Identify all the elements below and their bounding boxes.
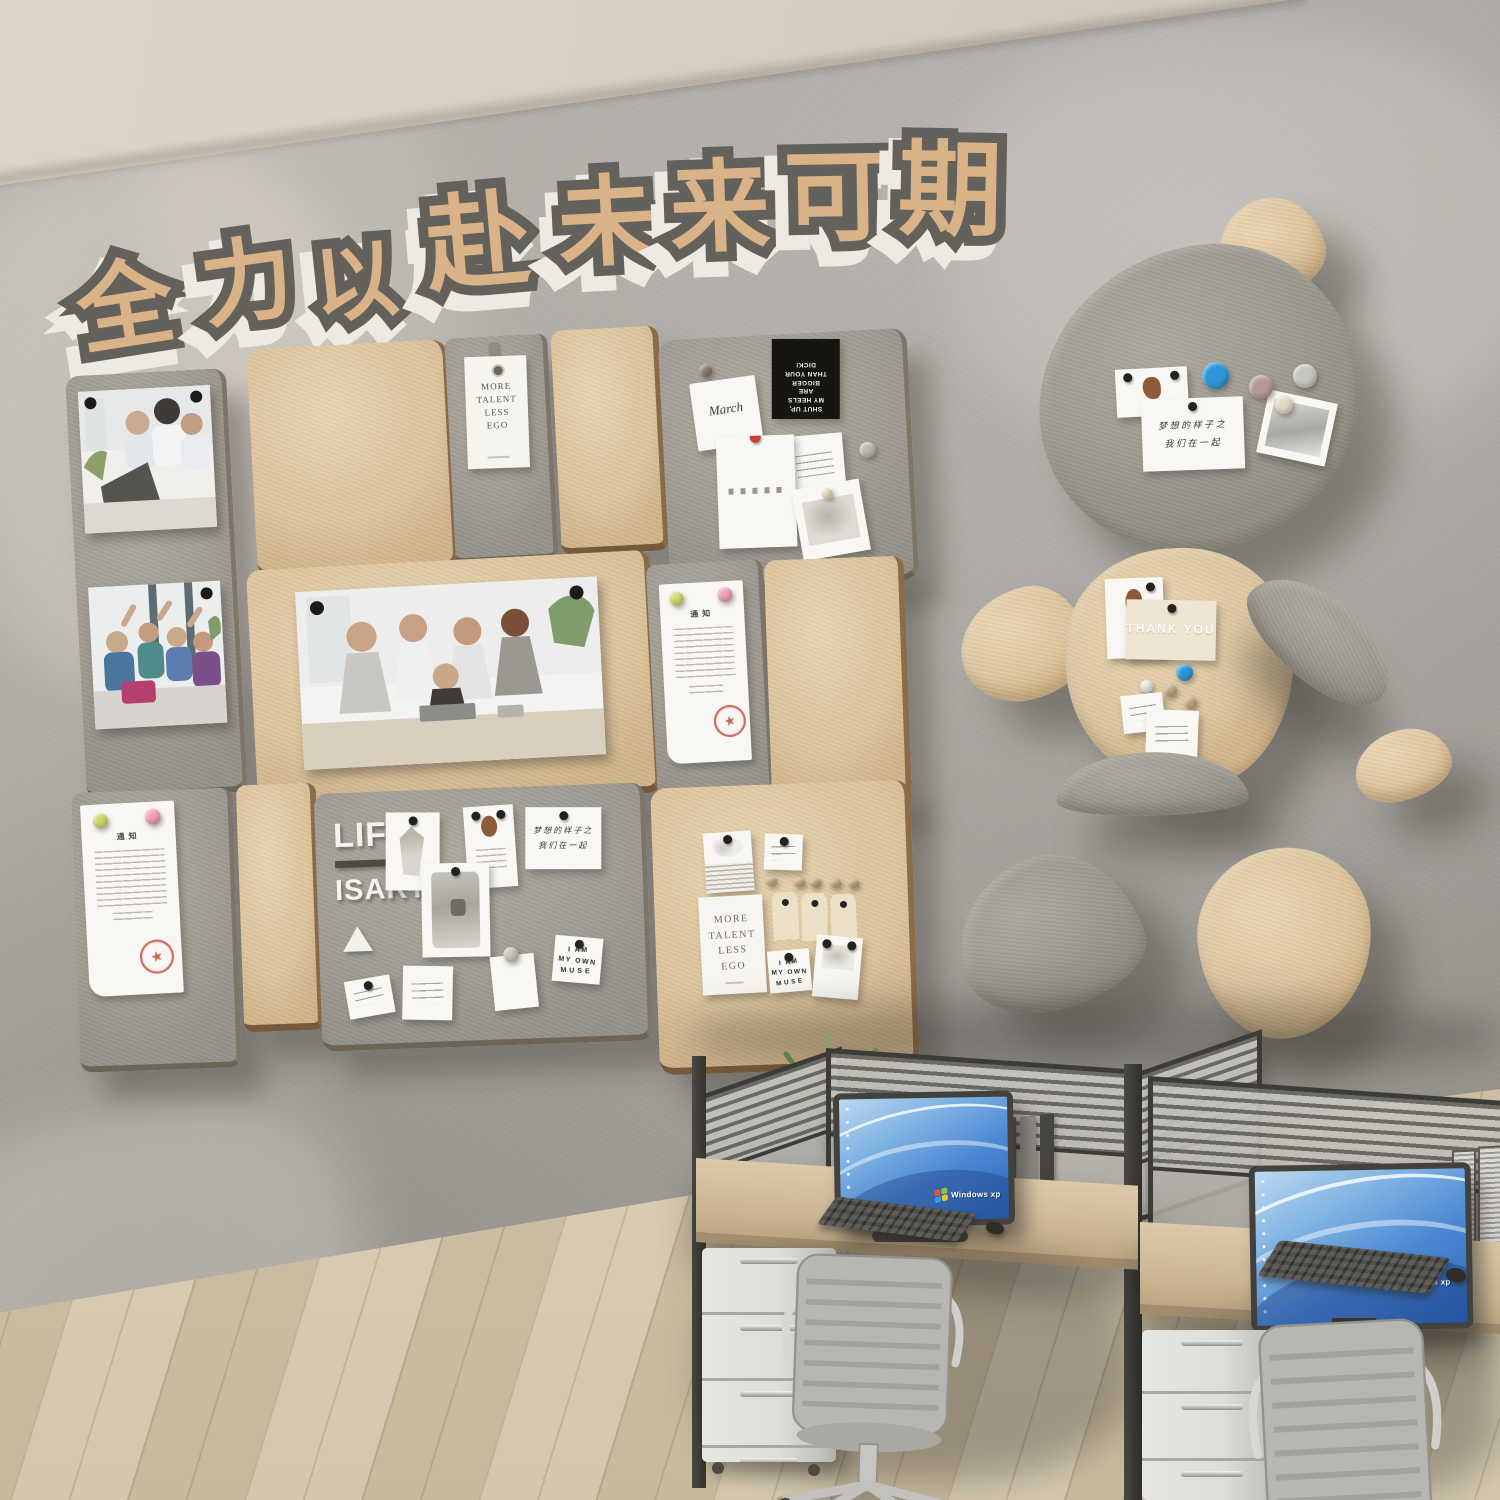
tag-hole: [781, 899, 788, 906]
slogan-char-4: 赴赴赴: [421, 185, 545, 309]
felt-pin: [793, 877, 805, 887]
windows-xp-logo: Windows xp: [935, 1188, 1001, 1202]
felt-board-tan-blank: [550, 325, 670, 555]
muse-text: I AM MY OWN MUSE: [767, 956, 811, 989]
magnet-mauve: [1249, 375, 1273, 399]
magnet-white: [1140, 680, 1153, 693]
small-note: [764, 833, 803, 870]
pin-dot: [409, 816, 418, 825]
notice-body-lines: [673, 626, 736, 681]
poster-text: MORE TALENT LESS EGO: [699, 910, 766, 975]
char-fill: 赴: [421, 186, 534, 299]
tag-hole: [839, 901, 846, 908]
pin-dot: [1170, 371, 1179, 380]
windows-flag-icon: [935, 1187, 949, 1203]
office-chair-left: [752, 1248, 991, 1500]
magnet-pink: [144, 808, 161, 825]
felt-board-tan-blank: [246, 339, 460, 580]
slogan-char-6: 来来来: [668, 156, 782, 270]
slogan-char-2: 力力力: [195, 229, 309, 343]
patterned-postcard: [703, 830, 755, 893]
quote-line: DICK!: [772, 359, 840, 368]
stamp-star: [150, 949, 164, 963]
red-stamp: [136, 935, 178, 977]
char-fill: 期: [897, 137, 1003, 243]
char-fill: 全: [70, 252, 180, 362]
red-pin: [749, 434, 760, 443]
magnet-green: [669, 591, 684, 606]
notice-document: 通知: [80, 801, 184, 998]
pin-dot: [780, 837, 789, 846]
thank-you-text: THANK YOU: [1126, 621, 1216, 637]
chinese-handwritten-card: 梦想的样子之 我们在一起: [1141, 396, 1245, 472]
grayscale-fashion-photo: [421, 862, 491, 957]
quote-line: THAN YOUR: [772, 368, 840, 377]
handwriting-squiggle: [795, 451, 835, 478]
heart-sketch: [480, 815, 497, 837]
felt-pin: [847, 878, 859, 888]
more-talent-poster: MORE TALENT LESS EGO: [698, 894, 767, 995]
red-stamp: [710, 701, 750, 741]
icon-row: [728, 486, 784, 494]
slogan-char-7: 可可可: [783, 147, 895, 259]
pin-dot: [451, 867, 460, 876]
notice-title: 通知: [660, 606, 744, 621]
magnet-blue: [1176, 664, 1193, 681]
divider-bar: [335, 859, 393, 868]
felt-pin: [765, 876, 777, 886]
march-text: March: [692, 397, 760, 422]
pin-dot: [1188, 402, 1197, 411]
quote-line: BIGGER: [772, 377, 840, 386]
handwriting-squiggle: [771, 845, 796, 859]
slogan-char-8: 期期期: [897, 137, 1013, 253]
team-group-photo: [295, 576, 606, 770]
magnet-cream: [1275, 396, 1293, 414]
magnet-blue: [1202, 362, 1229, 389]
kraft-tag: [771, 891, 799, 940]
felt-board-tan-main-photo: [246, 550, 662, 814]
magnet-gray: [1293, 364, 1317, 388]
black-quote-card: SHUT UP, MY HEELS ARE BIGGER THAN YOUR D…: [772, 339, 840, 419]
chinese-note-text: 梦想的样子之 我们在一起: [1141, 414, 1244, 454]
triangle-ornament: [342, 926, 373, 952]
muse-text: I AM MY OWN MUSE: [552, 944, 603, 980]
stamp-star: [723, 714, 736, 727]
pin-dot: [1146, 582, 1155, 591]
tag-hole: [491, 364, 504, 377]
char-fill: 可: [783, 147, 885, 249]
white-card-icons: [716, 434, 798, 549]
small-note: [490, 953, 539, 1011]
felt-board-tan-blank-narrow: [236, 783, 325, 1033]
poster-line: EGO: [701, 957, 766, 976]
magnet-tan: [1184, 696, 1197, 709]
felt-board-tan-blank: [764, 556, 913, 810]
tag-line: EGO: [466, 418, 528, 433]
small-note: [402, 966, 453, 1021]
note-line: 我们在一起: [1142, 432, 1245, 454]
photo-card: [791, 478, 870, 561]
handwriting-squiggle: [354, 987, 386, 1008]
photo-blob: [1265, 398, 1330, 457]
notice-body-lines: [113, 911, 153, 923]
tag-text: MORE TALENT LESS EGO: [465, 379, 529, 433]
char-fill: 以: [309, 236, 401, 328]
dried-flower: [1143, 376, 1161, 399]
windows-logo-text: Windows xp: [951, 1190, 1001, 1200]
magnet-pink: [717, 587, 733, 603]
pattern-rows: [705, 861, 755, 893]
office-chair-right: [1218, 1312, 1474, 1500]
camera-sketch: [450, 899, 465, 916]
office-photo-team-cheering: [88, 581, 227, 730]
pin-dot: [559, 811, 568, 820]
quote-line: MY HEELS: [772, 394, 840, 403]
handwriting-squiggle: [1155, 726, 1189, 746]
char-fill: 来: [668, 156, 771, 259]
felt-board-gray-notice-2: 通知: [71, 787, 242, 1072]
slogan-char-5: 未未未: [555, 171, 668, 284]
tag-rule: [488, 456, 510, 459]
pin-dot: [471, 811, 481, 821]
binder-textured: [1478, 1145, 1500, 1254]
felt-board-gray-notes: March SHUT UP, MY HEELS ARE BIGGER THAN …: [658, 328, 920, 593]
felt-board-gray-notice: 通知: [646, 559, 776, 811]
black-card-text: SHUT UP, MY HEELS ARE BIGGER THAN YOUR D…: [772, 359, 840, 412]
char-fill: 力: [195, 231, 299, 335]
office-culture-wall-scene: 全全全 力力力 以以以 赴赴赴 未未未 来来来 可可可 期期期: [0, 0, 1500, 1500]
note-line: 梦想的样子之: [525, 823, 601, 838]
felt-board-life-is-art: LIFE ISART 梦想的样子之 我们在一起: [314, 782, 654, 1051]
felt-pin: [829, 878, 841, 888]
felt-board-gray-with-tag: MORE TALENT LESS EGO: [444, 333, 559, 564]
notice-title: 通知: [81, 828, 175, 844]
office-photo-laptop-meeting: [78, 385, 217, 534]
notice-body-lines: [689, 684, 723, 696]
caster-wheel: [712, 1462, 724, 1474]
pin-dot: [1123, 373, 1132, 382]
notice-body-lines: [95, 848, 167, 908]
char-fill: 未: [555, 172, 658, 275]
notice-document: 通知: [659, 580, 752, 764]
note-line: 我们在一起: [525, 838, 601, 853]
handwriting-squiggle: [411, 983, 444, 1005]
thank-you-card: THANK YOU: [1125, 599, 1216, 661]
magnet-brown: [699, 364, 713, 378]
chinese-handwritten-card: 梦想的样子之 我们在一起: [525, 807, 601, 869]
slogan-char-1: 全全全: [70, 250, 191, 371]
magnet-tan: [1164, 684, 1177, 697]
photo-card: [812, 934, 863, 1000]
more-talent-hang-tag: MORE TALENT LESS EGO: [464, 355, 530, 469]
pin-dot: [496, 810, 506, 820]
pin-dot: [847, 941, 857, 951]
small-note: [344, 974, 396, 1019]
photo-blob: [802, 494, 860, 546]
felt-pin: [809, 878, 821, 888]
tag-hole: [811, 900, 818, 907]
quote-line: ARE: [772, 386, 840, 395]
muse-note: I AM MY OWN MUSE: [767, 948, 813, 994]
poster-rule: [726, 981, 744, 984]
magnet-green: [92, 813, 108, 829]
quote-line: SHUT UP,: [772, 403, 840, 412]
magnet-gray: [859, 441, 876, 458]
chinese-note-text: 梦想的样子之 我们在一起: [525, 823, 601, 853]
slogan-char-3: 以以以: [309, 235, 411, 337]
photo-graphic: [295, 576, 606, 770]
pin-dot: [1167, 604, 1176, 613]
muse-note: I AM MY OWN MUSE: [552, 935, 604, 985]
muse-line: MUSE: [552, 965, 600, 978]
felt-board-gray-tall: [65, 368, 248, 800]
photo-graphic: [88, 581, 227, 730]
photo-graphic: [78, 385, 217, 534]
